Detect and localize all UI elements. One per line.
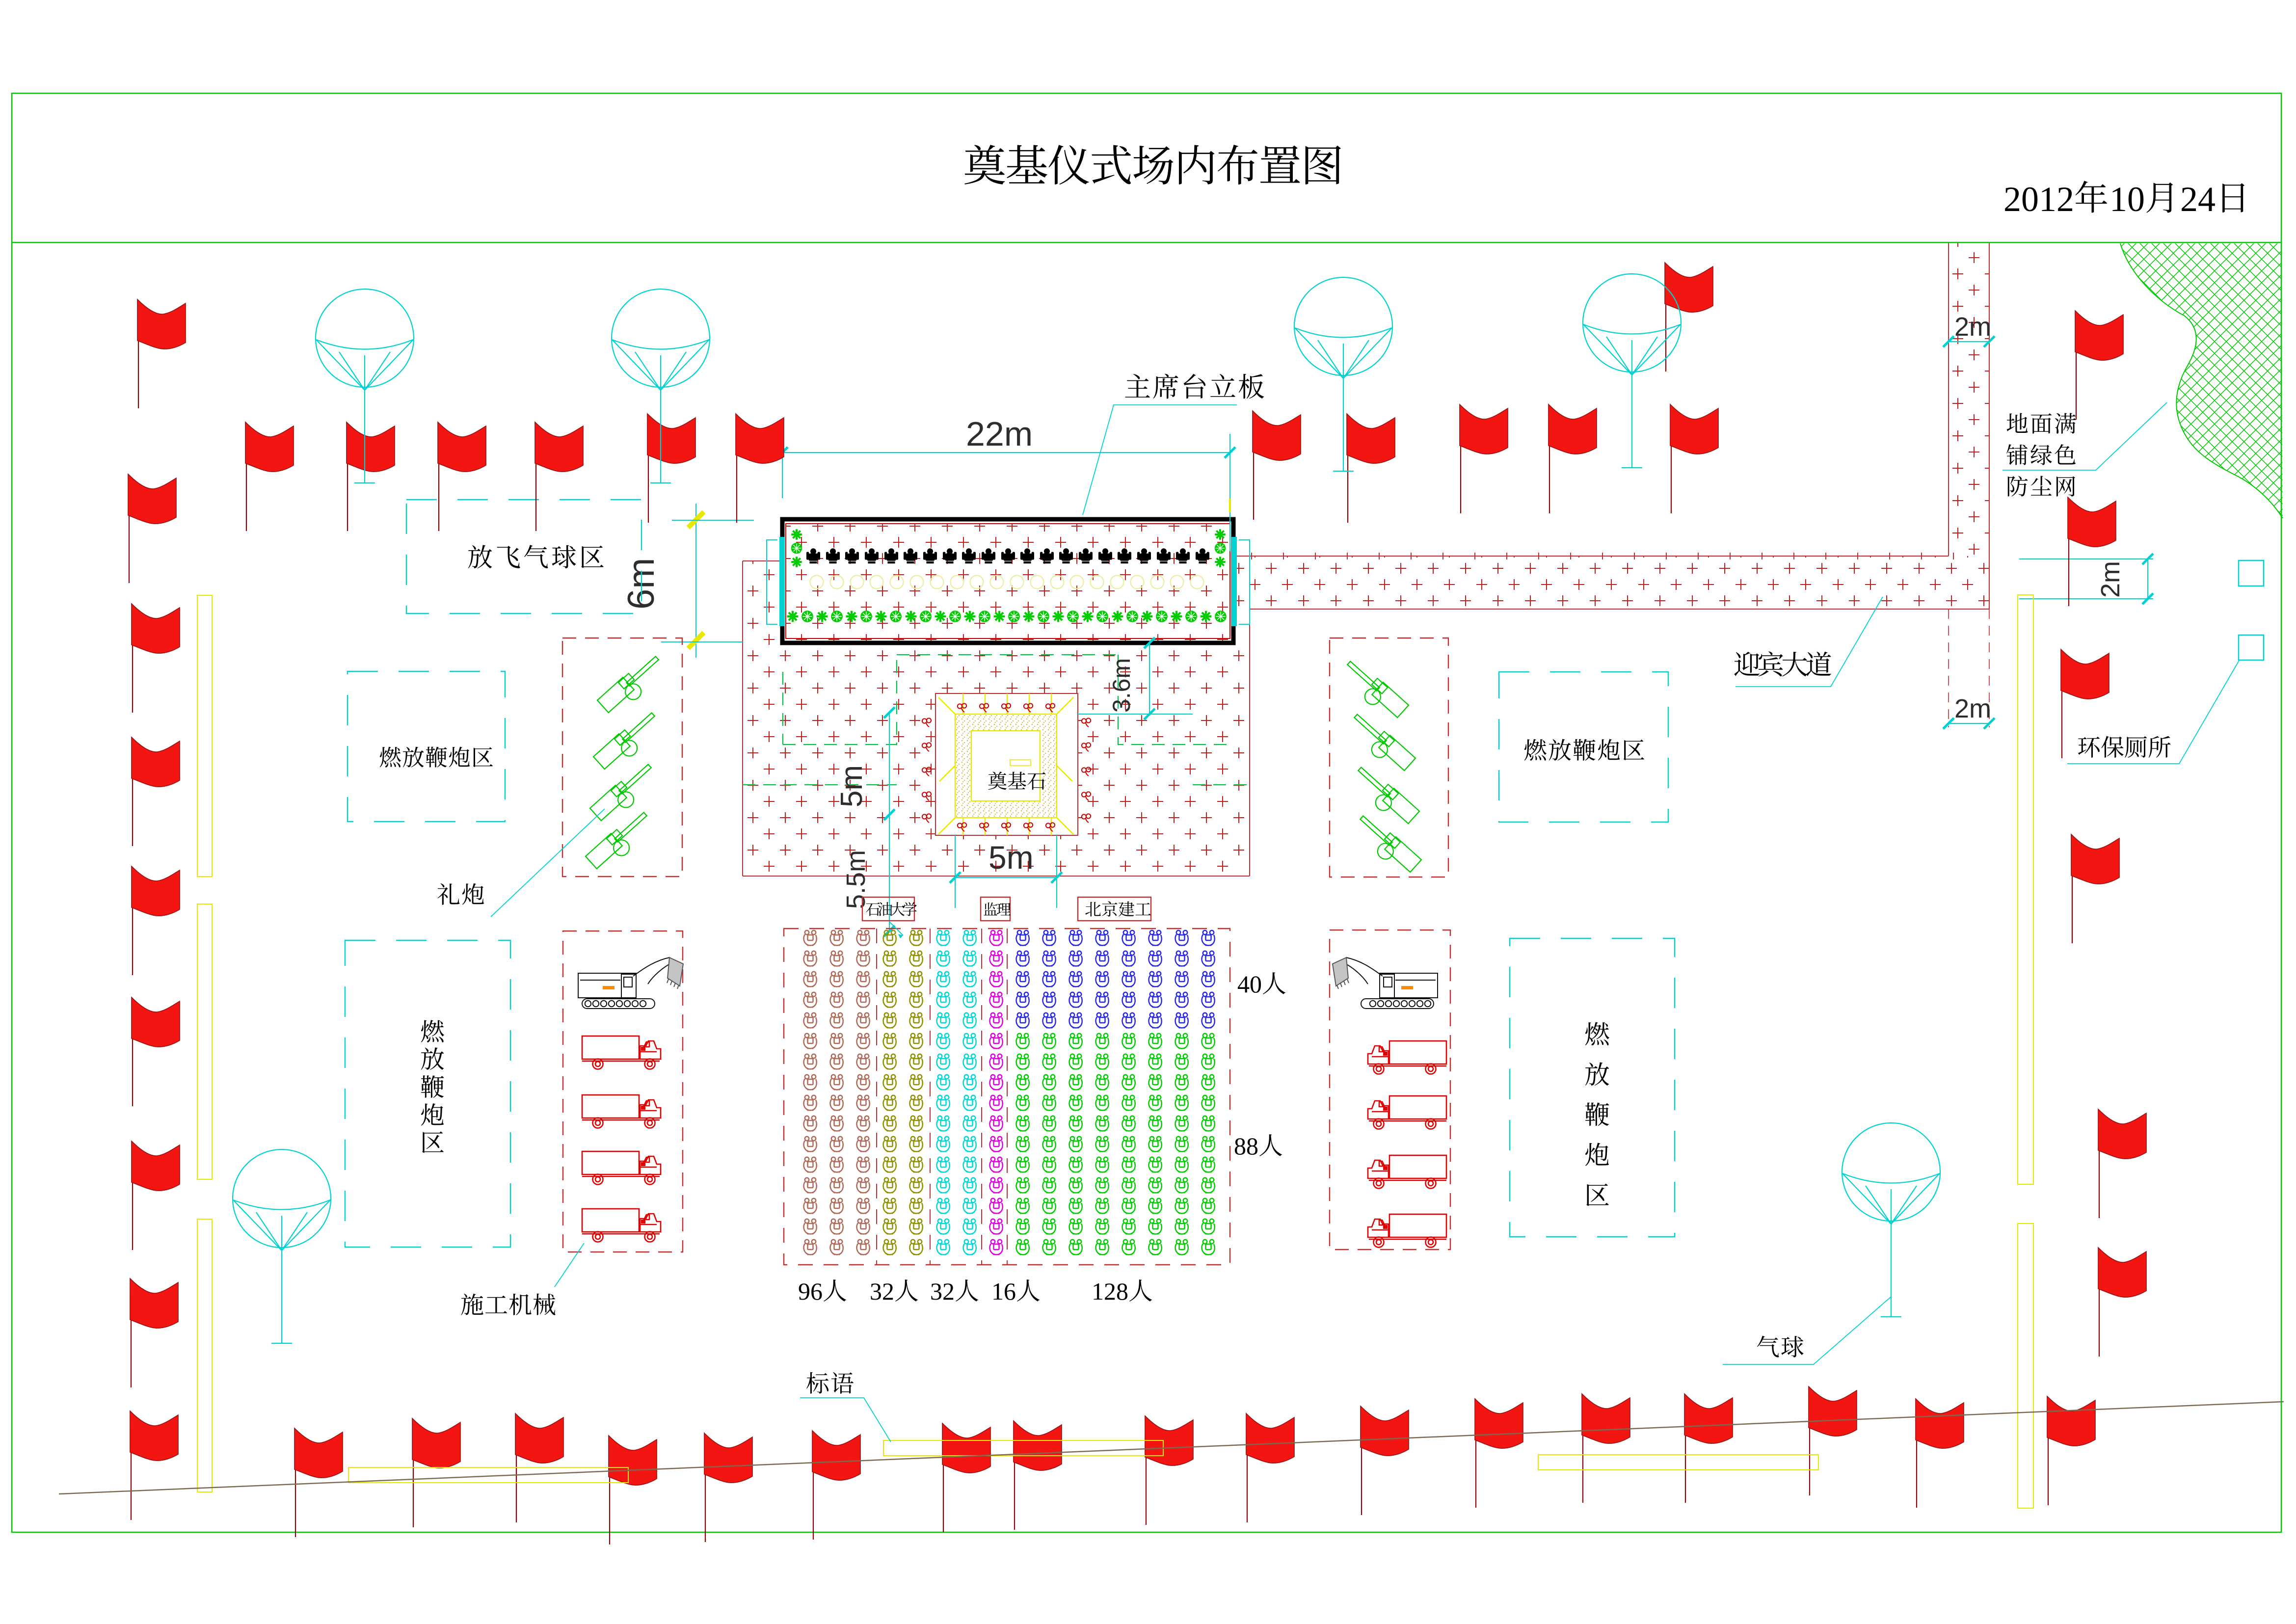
svg-text:2m: 2m: [1954, 312, 1991, 342]
svg-text:5m: 5m: [988, 839, 1034, 876]
svg-text:96: 96: [798, 1278, 823, 1305]
svg-text:16: 16: [991, 1278, 1016, 1305]
svg-text:24: 24: [2180, 180, 2216, 219]
svg-text:10: 10: [2109, 180, 2145, 219]
svg-text:2m: 2m: [2096, 561, 2125, 598]
svg-text:2012: 2012: [2003, 180, 2074, 219]
svg-text:32: 32: [930, 1278, 955, 1305]
svg-text:22m: 22m: [966, 415, 1033, 453]
svg-text:3.6m: 3.6m: [1108, 658, 1135, 713]
svg-text:40: 40: [1237, 970, 1262, 998]
svg-text:88: 88: [1234, 1132, 1258, 1160]
svg-text:5m: 5m: [835, 765, 869, 807]
svg-text:5.5m: 5.5m: [841, 850, 871, 909]
svg-text:2m: 2m: [1954, 694, 1991, 723]
svg-text:32: 32: [870, 1278, 894, 1305]
svg-text:128: 128: [1092, 1278, 1128, 1305]
